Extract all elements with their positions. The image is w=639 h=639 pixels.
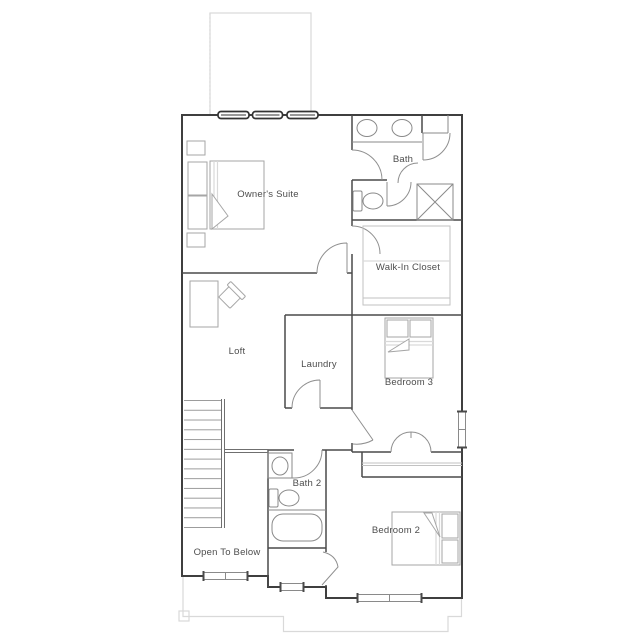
pillow bbox=[442, 514, 458, 538]
room-label-owners-suite: Owner's Suite bbox=[237, 189, 298, 200]
door-walk-in-closet bbox=[352, 226, 380, 254]
pillow bbox=[188, 162, 207, 195]
pillow bbox=[410, 320, 431, 337]
stairs-railing bbox=[222, 399, 269, 528]
desk-chair bbox=[217, 281, 246, 310]
door-owners-suite bbox=[317, 243, 347, 273]
door-linen-closet bbox=[423, 133, 450, 160]
pillow bbox=[188, 196, 207, 229]
room-label-laundry: Laundry bbox=[301, 359, 337, 370]
window-open-to-below bbox=[203, 571, 248, 581]
door-bedroom-2 bbox=[322, 552, 338, 585]
nightstand-bottom bbox=[187, 233, 205, 247]
door-shower bbox=[398, 163, 418, 183]
pillow bbox=[387, 320, 408, 337]
stairs bbox=[184, 399, 268, 528]
linen-closet-shelf bbox=[422, 115, 448, 133]
bathtub bbox=[272, 514, 322, 541]
sink-bath-2 bbox=[268, 453, 294, 478]
first-floor-outline-below bbox=[179, 576, 462, 632]
room-label-bath: Bath bbox=[393, 154, 413, 165]
room-label-bath-2: Bath 2 bbox=[293, 478, 322, 489]
room-label-bedroom-2: Bedroom 2 bbox=[372, 525, 420, 536]
door-bath bbox=[352, 150, 382, 180]
nightstand-top bbox=[187, 141, 205, 155]
vanity-double-sink bbox=[352, 120, 422, 143]
bedroom-3-bed bbox=[385, 318, 433, 378]
door-bedroom-3-closet bbox=[391, 432, 431, 452]
room-label-bedroom-3: Bedroom 3 bbox=[385, 377, 433, 388]
floor-plan-drawing: Owner's Suite Bath Walk-In Closet Loft L… bbox=[0, 0, 639, 639]
window-hall bbox=[280, 582, 304, 592]
door-laundry bbox=[292, 380, 320, 408]
triple-window-top bbox=[218, 112, 318, 119]
room-label-loft: Loft bbox=[229, 346, 246, 357]
bedroom-2-bed bbox=[392, 512, 460, 565]
room-label-walk-in-closet: Walk-In Closet bbox=[376, 262, 440, 273]
desk bbox=[190, 281, 218, 327]
room-label-open-to-below: Open To Below bbox=[194, 547, 261, 558]
window-bedroom-3 bbox=[457, 411, 467, 448]
floor-plan: Owner's Suite Bath Walk-In Closet Loft L… bbox=[0, 0, 639, 639]
door-bath-2 bbox=[294, 450, 322, 478]
toilet-bath bbox=[353, 191, 383, 211]
toilet-bath-2 bbox=[268, 489, 326, 510]
bedroom-2-closet-shelf bbox=[362, 463, 462, 466]
shower-stall bbox=[417, 184, 453, 220]
door-water-closet bbox=[387, 182, 411, 206]
door-bedroom-3 bbox=[352, 410, 373, 444]
roof-outline-above bbox=[210, 13, 311, 115]
window-bedroom-2 bbox=[357, 593, 422, 603]
pillow bbox=[442, 540, 458, 563]
